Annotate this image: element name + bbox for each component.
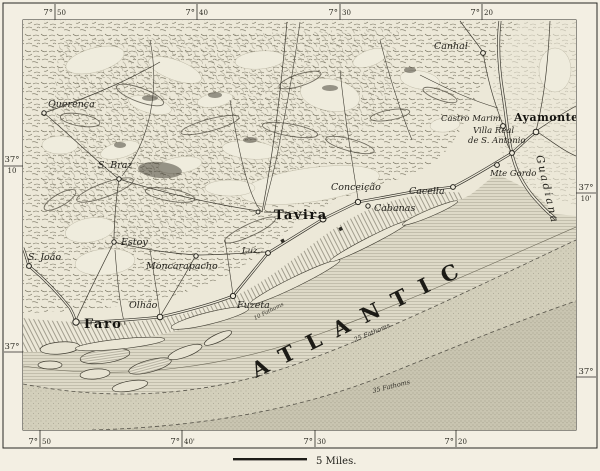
place-label-moncarapacho: Moncarapacho bbox=[145, 261, 218, 272]
marker-conceicao bbox=[355, 199, 360, 204]
scale-bar-line bbox=[233, 458, 307, 460]
place-label-estoy: Estoy bbox=[120, 237, 148, 248]
place-label-mte-gordo: Mte Gordo bbox=[489, 169, 536, 179]
place-label-villa-real-2: de S. Antonio bbox=[468, 136, 526, 146]
coord-bottom-2-deg: 7° bbox=[170, 437, 180, 447]
place-label-cacella: Cacella bbox=[409, 186, 445, 197]
coord-bottom-4-deg: 7° bbox=[444, 437, 454, 447]
marker-villa-real bbox=[510, 151, 515, 156]
place-label-s-braz: S. Braz bbox=[98, 160, 133, 171]
marker-cabanas bbox=[366, 204, 370, 208]
place-label-luz: Luz. bbox=[241, 246, 260, 256]
coord-top-2-min: 40 bbox=[199, 9, 208, 17]
marker-faro bbox=[73, 319, 79, 325]
coord-bottom-1-min: 50 bbox=[42, 438, 51, 446]
coord-left-2-deg: 37° bbox=[4, 342, 19, 352]
coord-right-1-deg: 37° bbox=[578, 183, 593, 193]
coord-top-3-deg: 7° bbox=[328, 8, 338, 18]
coord-top-4-min: 20 bbox=[484, 9, 493, 17]
coord-bottom-3-deg: 7° bbox=[303, 437, 313, 447]
place-label-conceicao: Conceição bbox=[331, 182, 381, 193]
marker-moncarapacho bbox=[194, 254, 198, 258]
coord-bottom-1-deg: 7° bbox=[28, 437, 38, 447]
marker-luz bbox=[266, 251, 271, 256]
place-label-ayamonte: Ayamonte bbox=[513, 111, 579, 124]
marker-s-braz bbox=[117, 177, 121, 181]
coord-bottom-4-min: 20 bbox=[458, 438, 467, 446]
coord-top-2-deg: 7° bbox=[185, 8, 195, 18]
marker-estoy bbox=[112, 240, 116, 244]
place-label-villa-real-1: Villa Real bbox=[473, 126, 514, 136]
engraved-map: 7° 50 7° 40 7° 30 7° 20 7° 50 7° 40' 7° … bbox=[0, 0, 600, 471]
marker-olhao bbox=[157, 314, 163, 320]
coord-bottom-2-min: 40' bbox=[184, 438, 195, 446]
marker-mte-gordo bbox=[495, 163, 500, 168]
place-label-canhal: Canhal bbox=[434, 41, 468, 52]
place-label-cabanas: Cabanas bbox=[374, 203, 415, 214]
scale-bar-label: 5 Miles. bbox=[316, 456, 356, 467]
coord-bottom-3-min: 30 bbox=[317, 438, 326, 446]
coord-top-1-min: 50 bbox=[57, 9, 66, 17]
marker-querenca bbox=[42, 111, 46, 115]
scale-bar: 5 Miles. bbox=[233, 456, 356, 467]
coord-left-1-min: 10 bbox=[8, 167, 17, 175]
place-label-olhao: Olhão bbox=[129, 300, 158, 311]
coord-top-1-deg: 7° bbox=[43, 8, 53, 18]
coord-top-4-deg: 7° bbox=[470, 8, 480, 18]
place-label-s-joao: S. João bbox=[28, 252, 61, 263]
place-label-faro: Faro bbox=[84, 317, 122, 332]
coord-left-1-deg: 37° bbox=[4, 155, 19, 165]
marker-s-joao bbox=[27, 264, 32, 269]
map-content: ATLANTIC Guadiana 10 Fathoms 25 Fathoms … bbox=[23, 20, 579, 430]
place-label-querenca: Querença bbox=[48, 99, 95, 110]
marker-tavira-west bbox=[256, 210, 260, 214]
coord-top-3-min: 30 bbox=[342, 9, 351, 17]
place-label-tavira: Tavira bbox=[274, 208, 328, 223]
coord-right-1-min: 10' bbox=[581, 195, 592, 203]
map-page: 7° 50 7° 40 7° 30 7° 20 7° 50 7° 40' 7° … bbox=[0, 0, 600, 471]
marker-canhal bbox=[481, 51, 486, 56]
place-label-castro-marim: Castro Marim bbox=[441, 114, 501, 124]
coord-right-2-deg: 37° bbox=[578, 367, 593, 377]
marker-cacella bbox=[451, 185, 456, 190]
marker-fuzeta bbox=[230, 293, 235, 298]
marker-ayamonte bbox=[533, 129, 539, 135]
place-label-fuzeta: Fuzeta bbox=[236, 300, 270, 311]
